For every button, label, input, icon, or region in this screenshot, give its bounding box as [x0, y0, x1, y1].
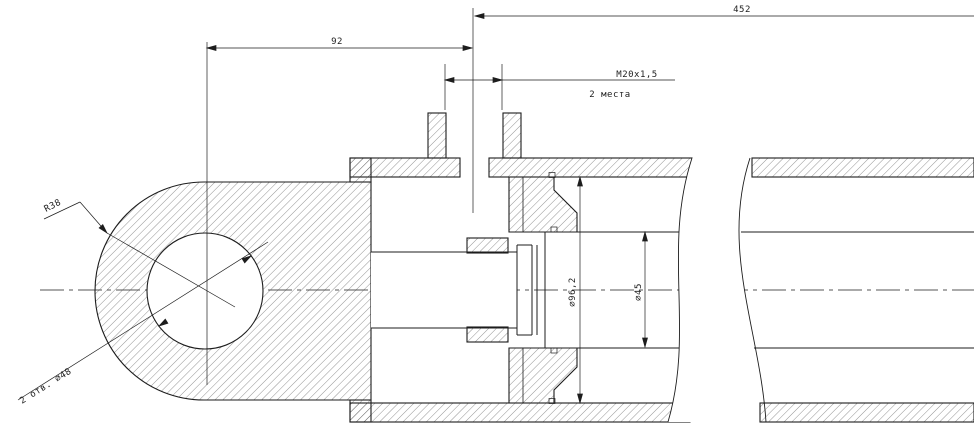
port-boss-right: [503, 113, 521, 158]
eye-lug-section: [95, 182, 371, 400]
gland-lower-section: [509, 348, 577, 404]
rod-diameter-text: ∅45: [634, 283, 644, 301]
barrel-wall-bottom-right: [760, 403, 974, 422]
eye-radius-text: R38: [43, 198, 63, 215]
drawing-canvas: 452 92 M20x1,5 2 места ∅96,2 ∅45 R38 2 о…: [0, 0, 974, 446]
port-boss-left: [428, 113, 446, 158]
port-thread-text: M20x1,5: [616, 70, 657, 80]
barrel-wall-top: [350, 158, 692, 177]
port-places-text: 2 места: [589, 90, 630, 100]
pin-bore: [147, 233, 263, 349]
dim-eye-to-port-text: 92: [331, 37, 343, 47]
bore-diameter-text: ∅96,2: [568, 277, 578, 307]
cylinder-section-drawing: 452 92 M20x1,5 2 места ∅96,2 ∅45 R38 2 о…: [0, 0, 974, 446]
eye-holes-text: 2 отв. ∅48: [18, 367, 73, 407]
dim-overall: [475, 14, 974, 19]
gland-upper-section: [509, 173, 577, 233]
break-lines: [668, 158, 766, 422]
barrel-wall-top-right: [752, 158, 974, 177]
port-hole: [460, 158, 489, 177]
barrel-wall-bottom: [350, 403, 690, 422]
dim-overall-text: 452: [733, 5, 751, 15]
